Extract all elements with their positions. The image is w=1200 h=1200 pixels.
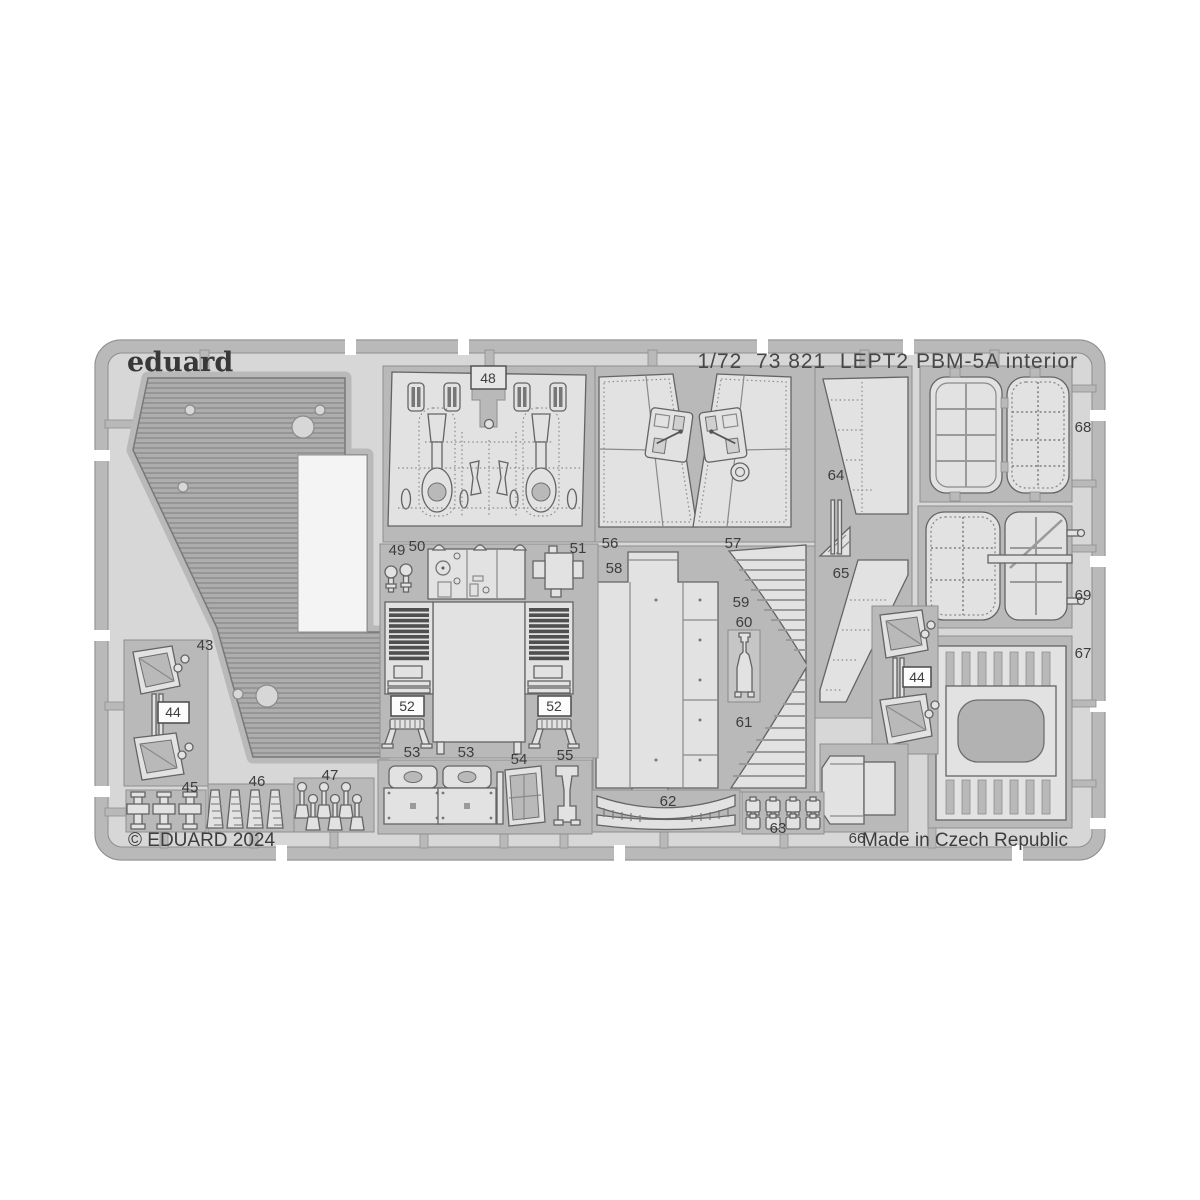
part-68-cluster: [920, 366, 1072, 502]
label-47: 47: [322, 767, 339, 784]
part-53-right: [438, 766, 496, 824]
part-58-panel: [596, 552, 718, 788]
label-58: 58: [606, 560, 623, 577]
label-53a: 53: [404, 744, 421, 761]
part-53-left: [384, 766, 442, 824]
part-56-instrument: [645, 407, 694, 462]
label-67: 67: [1075, 645, 1092, 662]
part-50-panel: [428, 545, 526, 599]
part-45-cluster: [126, 790, 206, 832]
part-57-instrument: [699, 407, 748, 462]
part-64-rod: [831, 500, 835, 554]
product-photo-page: eduard 1/72 73 821 LEPT2 PBM-5A interior…: [0, 0, 1200, 1200]
label-44-right: 44: [909, 669, 925, 685]
label-53b: 53: [458, 744, 475, 761]
label-69: 69: [1075, 587, 1092, 604]
pe-fret-sheet: eduard 1/72 73 821 LEPT2 PBM-5A interior…: [0, 0, 1200, 1200]
label-68: 68: [1075, 419, 1092, 436]
label-59: 59: [733, 594, 750, 611]
label-66: 66: [849, 830, 866, 847]
label-48: 48: [480, 370, 496, 386]
label-55: 55: [557, 747, 574, 764]
label-52a: 52: [399, 698, 415, 714]
part-64-rod2: [838, 500, 842, 554]
label-50: 50: [409, 538, 426, 555]
part-69-cluster: [918, 506, 1085, 628]
label-64: 64: [828, 467, 845, 484]
part-67-cluster: [928, 636, 1072, 828]
parts-58-61-cluster: [593, 545, 815, 796]
label-45: 45: [182, 779, 199, 796]
part-66-cluster: [820, 744, 908, 832]
part-47-cluster: [294, 778, 374, 832]
part-69-rod: [988, 555, 1072, 563]
label-51: 51: [570, 540, 587, 557]
part-46-cluster: [207, 784, 294, 832]
label-65: 65: [833, 565, 850, 582]
label-44-left: 44: [165, 704, 181, 720]
part-57-rosette: [731, 463, 749, 481]
label-54: 54: [511, 751, 528, 768]
label-62: 62: [660, 793, 677, 810]
sheet-title: 1/72 73 821 LEPT2 PBM-5A interior: [697, 350, 1078, 373]
part-45-items: [127, 792, 201, 829]
label-61: 61: [736, 714, 753, 731]
copyright-text: © EDUARD 2024: [128, 830, 275, 851]
part-43-cutout: [298, 455, 367, 632]
made-in-text: Made in Czech Republic: [862, 830, 1068, 851]
part-center-panel: [433, 602, 525, 742]
parts-53-55-cluster: [378, 760, 592, 834]
label-52b: 52: [546, 698, 562, 714]
label-56: 56: [602, 535, 619, 552]
part-67-hatch: [958, 700, 1044, 762]
label-60: 60: [736, 614, 753, 631]
label-57: 57: [725, 535, 742, 552]
label-63: 63: [770, 820, 787, 837]
parts-56-57-cluster: [595, 366, 818, 542]
parts-49-52-cluster: [380, 544, 598, 758]
label-49: 49: [389, 542, 406, 559]
eduard-logo: eduard: [127, 347, 233, 378]
part-52-louver-right: [525, 602, 573, 694]
label-46: 46: [249, 773, 266, 790]
part-52-louver-left: [385, 602, 433, 694]
label-43: 43: [197, 637, 214, 654]
